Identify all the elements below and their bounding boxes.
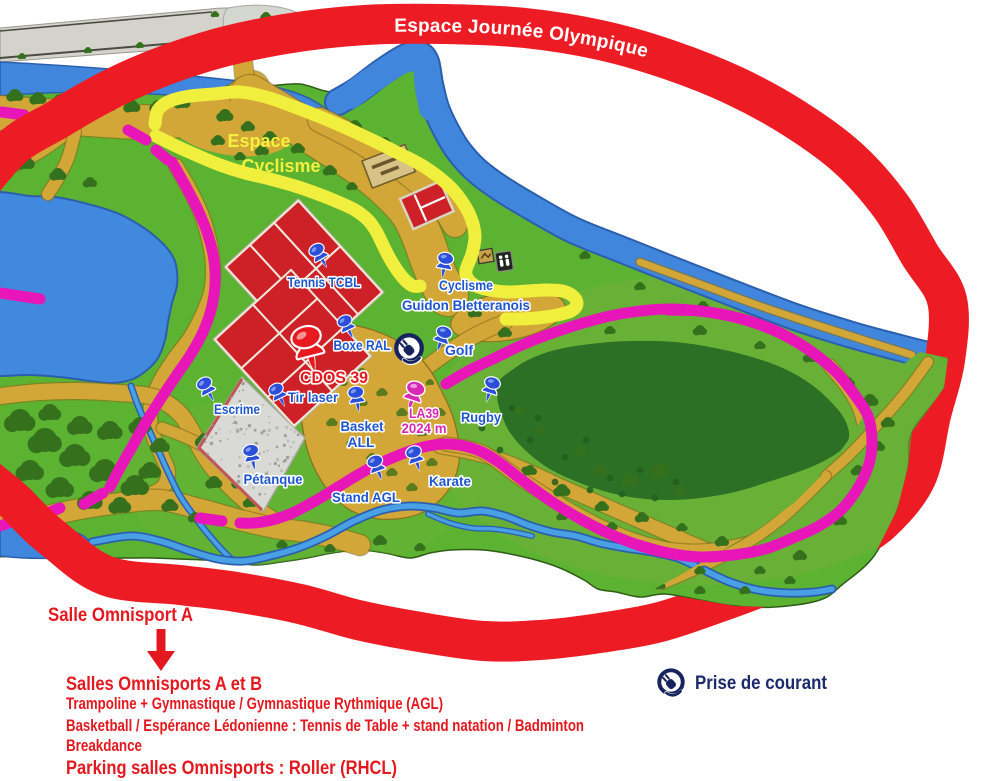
svg-text:Boxe RAL: Boxe RAL — [334, 337, 391, 353]
svg-text:Stand AGL: Stand AGL — [332, 489, 400, 505]
svg-text:Tennis TCBL: Tennis TCBL — [288, 274, 361, 290]
svg-text:Guidon Bletteranois: Guidon Bletteranois — [402, 297, 530, 313]
svg-text:Tir laser: Tir laser — [288, 389, 338, 405]
svg-text:Pétanque: Pétanque — [244, 471, 303, 487]
svg-text:Basketball / Espérance Lédonie: Basketball / Espérance Lédonienne : Tenn… — [66, 717, 584, 735]
svg-text:Breakdance: Breakdance — [66, 737, 142, 755]
svg-text:Karate: Karate — [429, 473, 471, 489]
svg-text:Rugby: Rugby — [461, 409, 501, 425]
svg-text:Cyclisme: Cyclisme — [241, 156, 320, 176]
svg-text:Espace: Espace — [227, 131, 290, 151]
svg-text:Salles Omnisports A et B: Salles Omnisports A et B — [66, 673, 262, 695]
svg-text:Golf: Golf — [445, 342, 473, 358]
svg-text:Trampoline + Gymnastique / Gym: Trampoline + Gymnastique / Gymnastique R… — [66, 695, 443, 713]
svg-text:ALL: ALL — [348, 434, 375, 450]
svg-text:Salle Omnisport A: Salle Omnisport A — [48, 605, 193, 626]
svg-text:LA39: LA39 — [409, 405, 439, 421]
svg-text:Escrime: Escrime — [214, 401, 260, 417]
svg-text:2024 m: 2024 m — [402, 420, 447, 436]
svg-text:Parking salles Omnisports : Ro: Parking salles Omnisports : Roller (RHCL… — [66, 757, 397, 779]
svg-text:Basket: Basket — [341, 418, 384, 434]
svg-text:CDOS 39: CDOS 39 — [300, 368, 368, 387]
svg-text:Cyclisme: Cyclisme — [439, 277, 493, 293]
svg-text:Prise de courant: Prise de courant — [695, 673, 828, 694]
